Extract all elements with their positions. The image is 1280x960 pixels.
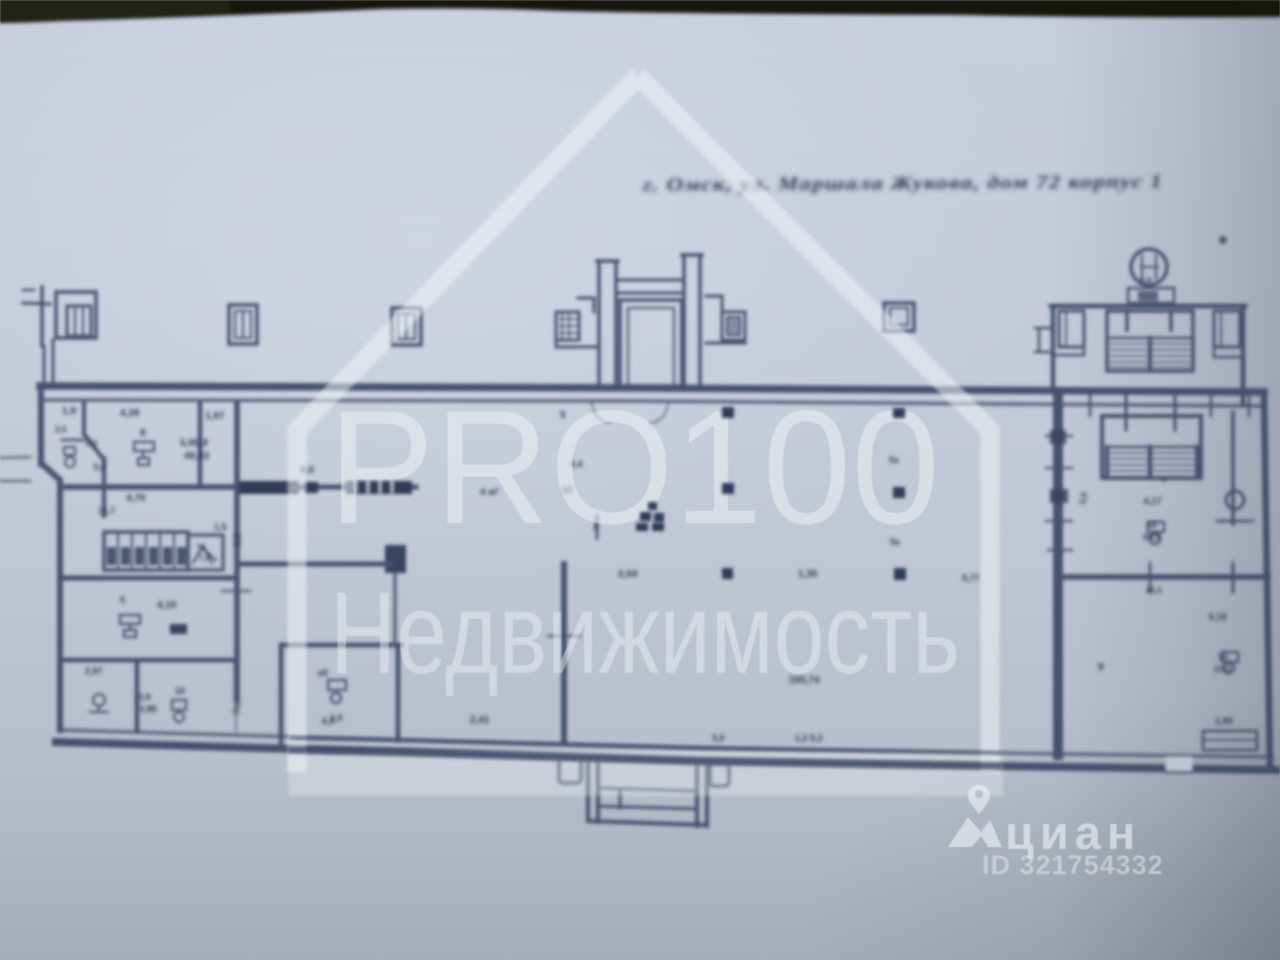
svg-text:2,97: 2,97 <box>85 666 103 676</box>
svg-text:8: 8 <box>140 428 146 439</box>
svg-text:3,2: 3,2 <box>93 462 106 472</box>
svg-text:кб: кб <box>318 668 329 678</box>
svg-text:1,2 5,2: 1,2 5,2 <box>795 733 823 743</box>
svg-text:4,0: 4,0 <box>86 439 98 448</box>
svg-text:г. Омск, ул. Маршала Жукова,: г. Омск, ул. Маршала Жукова, дом 72 корп… <box>643 171 1163 196</box>
svg-text:1,99: 1,99 <box>1215 716 1233 726</box>
svg-text:4,70: 4,70 <box>126 493 146 504</box>
svg-text:6,17: 6,17 <box>1144 496 1162 506</box>
svg-text:16: 16 <box>1147 520 1157 530</box>
svg-text:2,0: 2,0 <box>55 425 67 434</box>
svg-text:5: 5 <box>120 595 125 605</box>
svg-text:11,7: 11,7 <box>98 506 115 516</box>
svg-text:1,9: 1,9 <box>62 406 76 417</box>
svg-text:2,41: 2,41 <box>470 715 490 726</box>
svg-text:3,0: 3,0 <box>712 733 725 743</box>
svg-text:10: 10 <box>175 686 185 696</box>
svg-text:16: 16 <box>1218 652 1228 662</box>
svg-text:3,98: 3,98 <box>139 704 157 714</box>
svg-text:3,9: 3,9 <box>138 692 151 702</box>
svg-text:1,97: 1,97 <box>205 411 225 422</box>
svg-text:90,3: 90,3 <box>1143 532 1161 542</box>
svg-text:4,28: 4,28 <box>120 408 140 419</box>
svg-text:Недвижимость: Недвижимость <box>330 568 960 698</box>
svg-text:6,19: 6,19 <box>1209 612 1227 622</box>
svg-text:4,8: 4,8 <box>1139 276 1152 286</box>
svg-text:7,2: 7,2 <box>198 552 211 562</box>
svg-text:2,0: 2,0 <box>232 533 242 546</box>
svg-text:40,3: 40,3 <box>1146 586 1162 595</box>
svg-text:2,0: 2,0 <box>330 713 343 723</box>
svg-text:ID 321754332: ID 321754332 <box>982 850 1164 880</box>
svg-text:По: По <box>232 702 242 714</box>
svg-text:49,43: 49,43 <box>184 451 209 462</box>
svg-text:1,5: 1,5 <box>214 522 227 532</box>
svg-text:9: 9 <box>1098 662 1104 673</box>
svg-text:5,95,8: 5,95,8 <box>180 438 208 449</box>
svg-text:4,10: 4,10 <box>157 600 177 611</box>
svg-text:5,77: 5,77 <box>962 573 980 583</box>
svg-text:3,0: 3,0 <box>1077 491 1089 505</box>
svg-text:10,3: 10,3 <box>1214 664 1232 674</box>
svg-text:PRO100: PRO100 <box>328 377 940 558</box>
